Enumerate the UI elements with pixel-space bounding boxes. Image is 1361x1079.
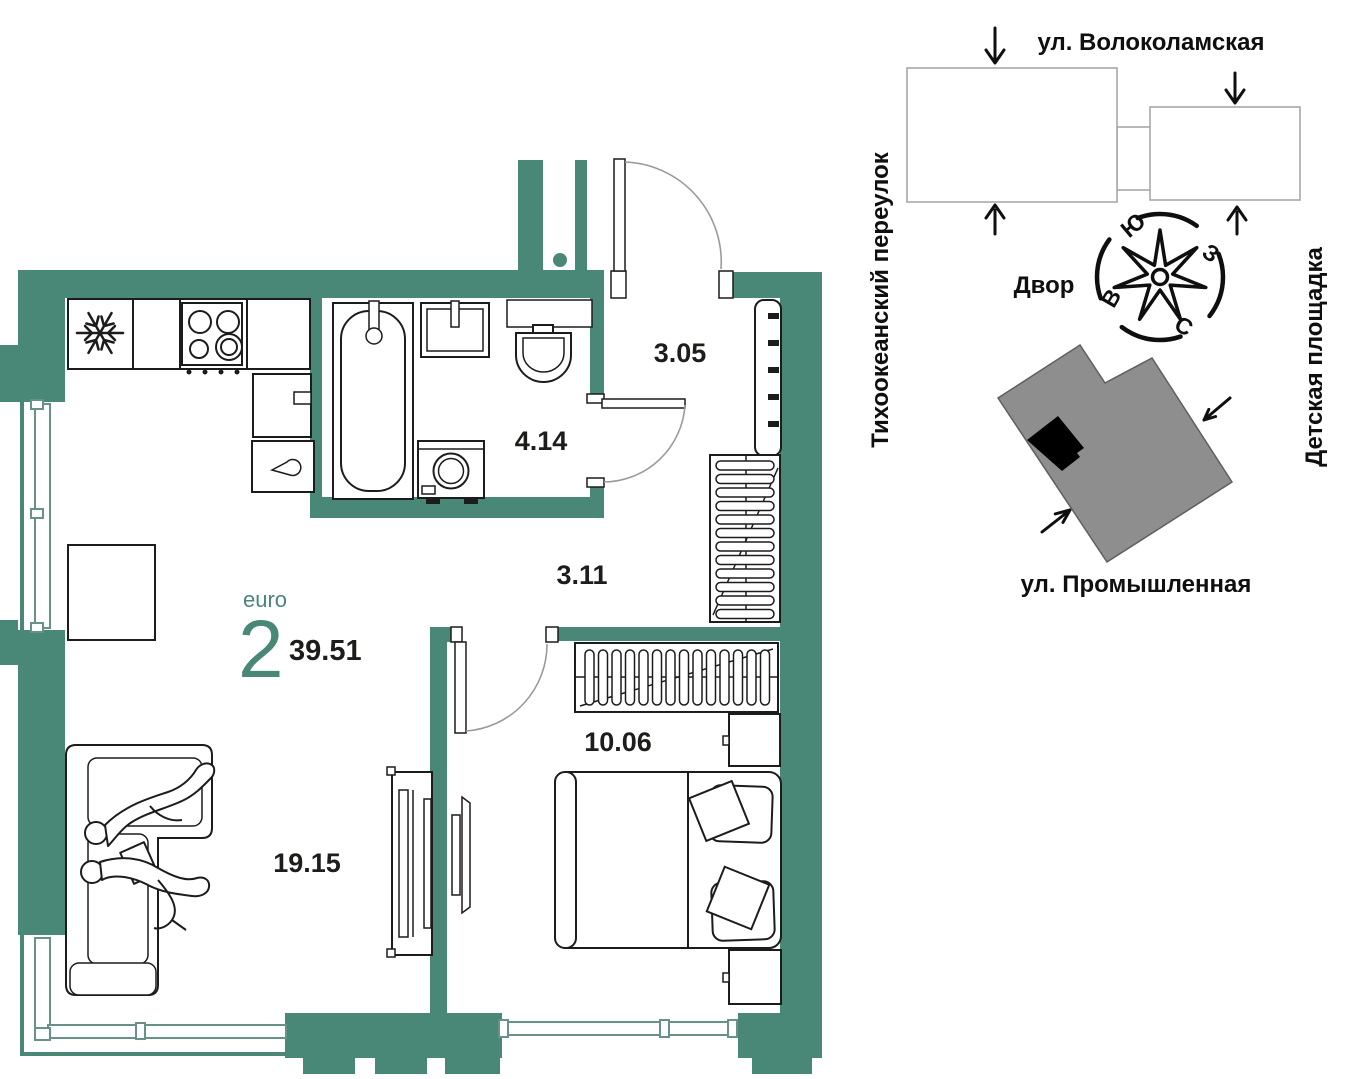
nightstand-top [723, 714, 780, 766]
shoe-cabinet [755, 300, 781, 456]
rooms-count: 2 [238, 604, 284, 695]
apartment-listing-plan: 3.05 4.14 3.11 10.06 19.15 euro 2 39.51 [0, 0, 1361, 1079]
area-hallway: 3.05 [654, 338, 707, 368]
compass: Ю З В С [1096, 207, 1225, 341]
wall-niche [507, 300, 592, 327]
courtyard-label: Двор [1014, 272, 1075, 299]
site-plan: Ю З В С ул. Волоколамская Тихоокеанский … [830, 0, 1361, 660]
entrance-door [611, 159, 733, 298]
arrow-to-building-sw [1042, 510, 1070, 532]
street-right-label: Детская площадка [1301, 246, 1328, 466]
total-area: 39.51 [289, 635, 362, 667]
kitchen-cabinet [253, 374, 311, 437]
kitchen-sink-cabinet [252, 441, 314, 492]
bedroom-wardrobe [575, 643, 778, 712]
apartment-summary: euro 2 39.51 [238, 587, 362, 695]
window-bedroom-bottom [499, 1020, 737, 1037]
compass-south: Ю [1116, 207, 1151, 242]
area-corridor: 3.11 [556, 560, 607, 590]
bathroom-sink [421, 301, 489, 357]
area-living: 19.15 [273, 848, 341, 878]
bathtub [333, 301, 413, 499]
tv-cabinet [387, 767, 432, 957]
hall-wardrobe [710, 455, 780, 622]
arrow-to-building-ne [1204, 398, 1230, 420]
side-table [68, 545, 155, 640]
area-bathroom: 4.14 [515, 426, 568, 456]
washing-machine [418, 441, 484, 504]
bed [555, 772, 781, 948]
area-bedroom: 10.06 [584, 727, 652, 757]
street-top-label: ул. Волоколамская [1037, 29, 1264, 56]
arrow-down-2 [1226, 73, 1244, 103]
arrow-down-1 [986, 28, 1004, 63]
bathroom-door [587, 394, 685, 487]
tv-bedroom [452, 797, 470, 913]
stove [182, 303, 242, 375]
neighbor-buildings [907, 68, 1300, 202]
street-bottom-label: ул. Промышленная [1021, 571, 1252, 598]
nightstand-bottom [723, 950, 781, 1004]
window-left [20, 400, 50, 632]
toilet [516, 325, 571, 382]
arrow-up-2 [1228, 207, 1246, 234]
bedroom-door [451, 627, 558, 733]
street-left-label: Тихоокеанский переулок [867, 151, 894, 447]
arrow-up-1 [986, 205, 1004, 234]
floor-plan: 3.05 4.14 3.11 10.06 19.15 euro 2 39.51 [0, 0, 830, 1079]
project-building [998, 345, 1232, 562]
